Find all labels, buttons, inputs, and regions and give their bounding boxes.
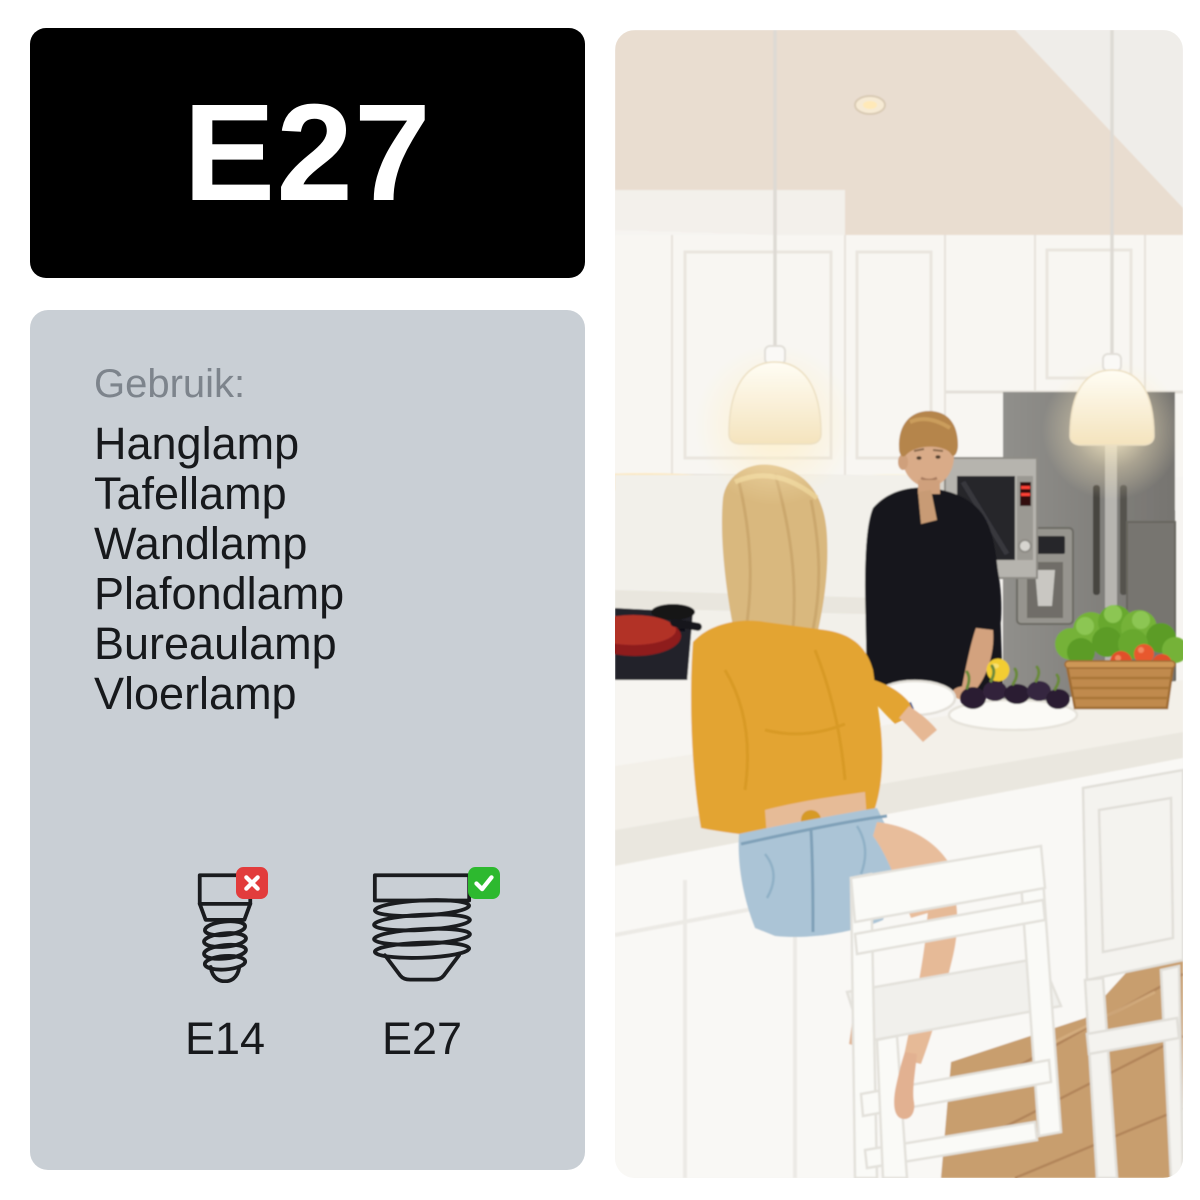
usage-item: Wandlamp xyxy=(94,519,545,569)
fitting-e14: E14 xyxy=(150,855,300,1065)
usage-item: Vloerlamp xyxy=(94,669,545,719)
usage-list: Hanglamp Tafellamp Wandlamp Plafondlamp … xyxy=(94,419,545,719)
ceiling xyxy=(615,30,1183,240)
fitting-label-e14: E14 xyxy=(150,1013,300,1065)
kitchen-photo xyxy=(615,30,1183,1178)
kitchen-scene xyxy=(615,30,1183,1178)
usage-item: Tafellamp xyxy=(94,469,545,519)
usage-item: Plafondlamp xyxy=(94,569,545,619)
usage-item: Bureaulamp xyxy=(94,619,545,669)
lemon xyxy=(987,659,1010,682)
socket-type-badge: E27 xyxy=(30,28,585,278)
usage-title: Gebruik: xyxy=(94,362,545,407)
info-panel: Gebruik: Hanglamp Tafellamp Wandlamp Pla… xyxy=(30,310,585,1170)
fitting-label-e27: E27 xyxy=(342,1013,502,1065)
cross-icon xyxy=(236,867,268,899)
usage-item: Hanglamp xyxy=(94,419,545,469)
socket-type-label: E27 xyxy=(183,74,432,233)
check-icon xyxy=(468,867,500,899)
fitting-e27: E27 xyxy=(342,855,502,1065)
e27-socket-icon xyxy=(366,855,478,983)
